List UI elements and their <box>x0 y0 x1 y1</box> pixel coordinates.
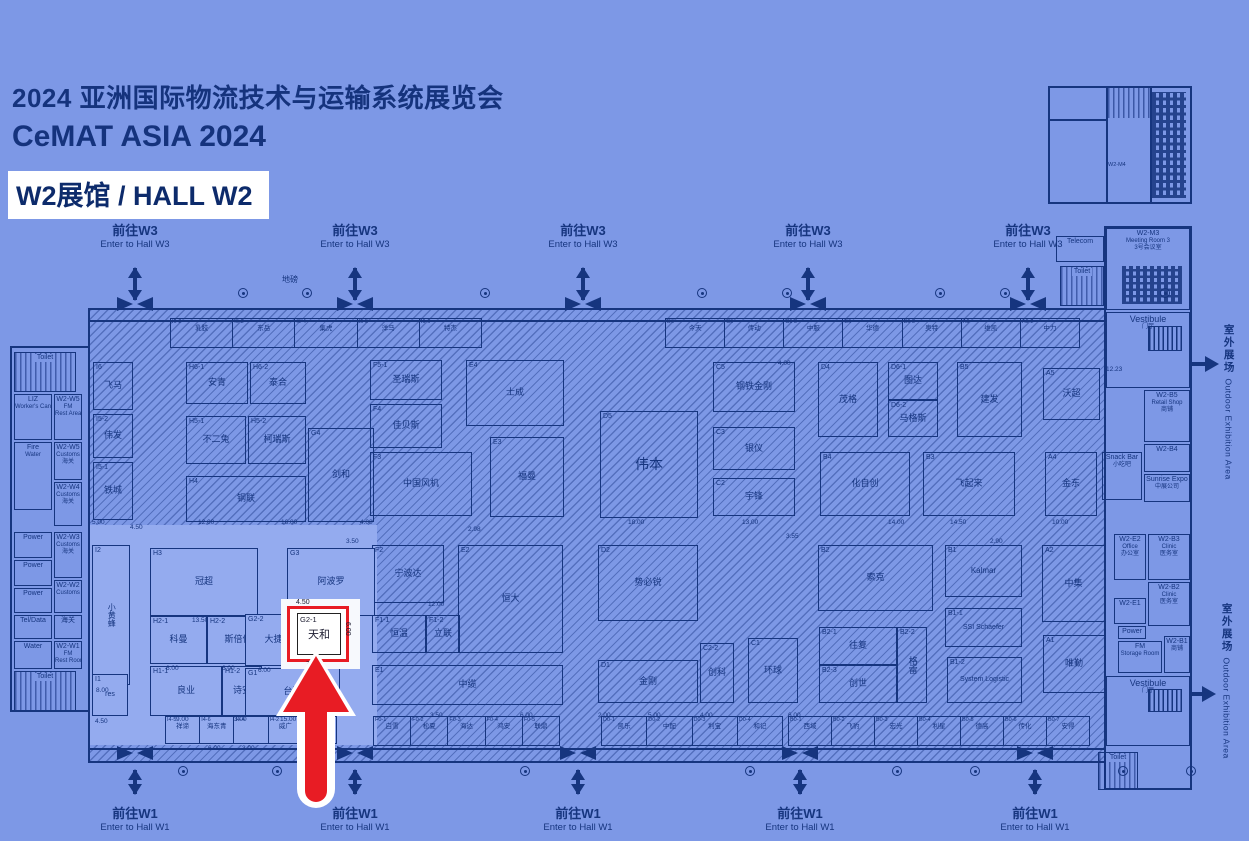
strip-booth-C6-2: C6-2中服 <box>784 319 843 347</box>
door-swing-icon <box>697 288 707 298</box>
booth-C5: C5钢铁金刚 <box>713 362 795 412</box>
room-LIZ: LIZWorker's Canteen <box>14 394 52 440</box>
door-swing-icon <box>745 766 755 776</box>
booth-strip: B0-1西域B0-2飞豹B0-3宏光B0-4利星B0-5德高B0-6传化B0-7… <box>788 716 1090 746</box>
booth-name: 剑和 <box>309 429 373 521</box>
booth-E1: E1中缆 <box>372 665 563 705</box>
room-W2-B4: W2-B4 <box>1144 444 1190 472</box>
booth-strip: F0-1白雪F0-2松夏F0-3海达F0-4鸿安F0-5联鼎 <box>373 716 560 746</box>
door-swing-icon <box>480 288 490 298</box>
strip-booth-D0-2: D0-2中配 <box>647 717 692 745</box>
strip-booth-F0-2: F0-2松夏 <box>411 717 448 745</box>
hall-link-w1: 前往W1Enter to Hall W1 <box>740 803 860 833</box>
annex-wall <box>1048 119 1106 121</box>
door-swing-icon <box>238 288 248 298</box>
strip-booth-A6-2: A6-2中力 <box>1021 319 1079 347</box>
highlight-dim-right: 6.00 <box>344 622 351 636</box>
outdoor-area-label: 室外展场 Outdoor Exhibition Area <box>1218 596 1236 766</box>
dimension-label: 3.50 <box>346 538 359 545</box>
booth-D6-2: D6-2马格斯 <box>888 400 938 437</box>
booth-name: 建发 <box>958 363 1021 436</box>
entrance-door-icon <box>782 746 818 761</box>
stairs-icon <box>1148 689 1182 712</box>
booth-F1-1: F1-1恒温 <box>372 615 426 653</box>
door-swing-icon <box>1160 288 1170 298</box>
dimension-label: 8.00 <box>96 687 109 694</box>
dimension-label: 4.50 <box>130 524 143 531</box>
room-W2-W3: W2-W3Customs海关 <box>54 532 82 578</box>
hall-link-arrow-icon <box>569 762 587 802</box>
booth-name: 金刚 <box>599 661 697 702</box>
hall-link-arrow-icon <box>346 762 364 802</box>
room-W2-E2: W2-E2Office办公室 <box>1114 534 1146 580</box>
booth-B2-1: B2-1往复 <box>819 627 897 665</box>
dimension-label: 6.00 <box>208 745 221 752</box>
dimension-label: 3.50 <box>430 712 443 719</box>
booth-name: 中国风机 <box>371 453 471 515</box>
dimension-label: 3.00 <box>234 716 247 723</box>
door-swing-icon <box>520 766 530 776</box>
room-Vestibule: Vestibule门厅 <box>1106 312 1190 388</box>
booth-I5-2: I5-2伟发 <box>93 414 133 458</box>
dimension-label: 6.00 <box>222 665 235 672</box>
booth-E2: E2恒大 <box>458 545 563 653</box>
booth-name: 创世 <box>820 666 896 702</box>
room-Vestibule: Vestibule门厅 <box>1106 676 1190 746</box>
booth-name: 钢联 <box>187 477 305 521</box>
booth-strip: I6-2乳胶I6-3东岳I6-4集虎I6-5洋马I6-6特杰 <box>170 318 482 348</box>
booth-name: 银仪 <box>714 428 794 469</box>
dimension-label: 2.90 <box>990 538 1003 545</box>
booth-I1: I1res <box>92 674 128 716</box>
room-海关: 海关 <box>54 615 82 639</box>
weighbridge-label: 地磅 <box>282 274 298 285</box>
strip-booth-F0-1: F0-1白雪 <box>374 717 411 745</box>
dimension-label: 4.00 <box>778 360 791 367</box>
booth-name: Kalmar <box>946 546 1021 596</box>
strip-booth-B0-1: B0-1西域 <box>789 717 832 745</box>
booth-I2: I2小黄蜂 <box>92 545 130 685</box>
room-W2-W5: W2-W5Customs海关 <box>54 442 82 480</box>
room-Snack Bar: Snack Bar小吃吧 <box>1102 452 1142 500</box>
hall-link-arrow-icon <box>126 260 144 308</box>
booth-name: 中集 <box>1043 546 1104 621</box>
booth-A2: A2中集 <box>1042 545 1105 622</box>
entrance-door-icon <box>560 746 596 761</box>
booth-H6-1: H6-1安青 <box>186 362 248 404</box>
booth-H3: H3冠超 <box>150 548 258 616</box>
booth-C3: C3银仪 <box>713 427 795 470</box>
booth-name: 势必锐 <box>599 546 697 620</box>
booth-I5-1: I5-1铁城 <box>93 462 133 520</box>
door-swing-icon <box>892 766 902 776</box>
booth-name: 福曼 <box>491 438 563 516</box>
strip-booth-B0-5: B0-5德高 <box>961 717 1004 745</box>
room-FM: FMStorage Room <box>1118 641 1162 673</box>
strip-booth-F0-4: F0-4鸿安 <box>486 717 523 745</box>
booth-name: 化自创 <box>821 453 909 515</box>
strip-booth-B6: B6华德 <box>843 319 902 347</box>
annex-seating-icon <box>1152 92 1186 198</box>
dimension-label: 4.00 <box>700 712 713 719</box>
booth-name: 环球 <box>749 639 797 702</box>
booth-A5: A5沃超 <box>1043 368 1100 420</box>
hall-link-arrow-icon <box>791 762 809 802</box>
booth-name: 冠超 <box>151 549 257 615</box>
strip-booth-D0-3: D0-3利宝 <box>693 717 738 745</box>
strip-booth-A6: A6维凯 <box>962 319 1021 347</box>
booth-D1: D1金刚 <box>598 660 698 703</box>
booth-B3: B3飞起来 <box>923 452 1015 516</box>
booth-name: 往复 <box>820 628 896 664</box>
hall-link-arrow-icon <box>799 260 817 308</box>
booth-F5-1: F5-1圣瑞斯 <box>370 360 442 400</box>
booth-B5: B5建发 <box>957 362 1022 437</box>
booth-E4: E4士成 <box>466 360 564 426</box>
booth-B1: B1Kalmar <box>945 545 1022 597</box>
room-W2-W5: W2-W5FMRest Area <box>54 394 82 440</box>
strip-booth-B0-3: B0-3宏光 <box>875 717 918 745</box>
dimension-label: 3.00 <box>242 745 255 752</box>
door-swing-icon <box>970 766 980 776</box>
dimension-label: 18.00 <box>628 519 644 526</box>
booth-strip: D6今天C6传动C6-2中服B6华德B6-2奥特A6维凯A6-2中力 <box>665 318 1080 348</box>
booth-A4: A4金东 <box>1045 452 1097 516</box>
annex-toilet-fixtures-icon <box>1108 88 1150 118</box>
room-W2-B3: W2-B3Clinic医务室 <box>1148 534 1190 580</box>
dimension-label: 12.00 <box>198 519 214 526</box>
dimension-label: 6.00 <box>258 667 271 674</box>
room-Water: Water <box>14 641 52 669</box>
highlight-dim-top: 4.50 <box>296 599 310 606</box>
booth-C2-2: C2-2创科 <box>700 643 734 703</box>
booth-name: 立联 <box>427 616 459 652</box>
booth-name: SSI Schaefer <box>946 609 1021 646</box>
booth-name: 圣瑞斯 <box>371 361 441 399</box>
dimension-label: 13.50 <box>192 617 208 624</box>
dimension-label: 4.50 <box>95 718 108 725</box>
booth-B2: B2索克 <box>818 545 933 611</box>
dimension-label: 6.00 <box>166 665 179 672</box>
room-W2-W1: W2-W1FMRest Room <box>54 641 82 669</box>
room-Power: Power <box>1118 626 1146 639</box>
door-swing-icon <box>935 288 945 298</box>
door-swing-icon <box>272 766 282 776</box>
booth-name: 飞起来 <box>924 453 1014 515</box>
strip-booth-I4-6: I4-6海东青 <box>200 717 234 743</box>
pointer-arrow-icon <box>305 710 327 802</box>
entrance-door-icon <box>1017 746 1053 761</box>
hall-link-arrow-icon <box>1019 260 1037 308</box>
outdoor-arrow-icon <box>1189 686 1217 702</box>
booth-B1-2: B1-2System Logistic <box>947 657 1022 703</box>
booth-H4: H4钢联 <box>186 476 306 522</box>
booth-name: 恒温 <box>373 616 425 652</box>
booth-C2: C2宇锋 <box>713 478 795 516</box>
floor-plan: 2024 亚洲国际物流技术与运输系统展览会 CeMAT ASIA 2024 W2… <box>0 0 1249 841</box>
booth-name: 飞马 <box>94 363 132 409</box>
strip-booth-B0-4: B0-4利星 <box>918 717 961 745</box>
strip-booth-B6-2: B6-2奥特 <box>903 319 962 347</box>
hall-link-w3: 前往W3Enter to Hall W3 <box>748 220 868 250</box>
door-swing-icon <box>1118 766 1128 776</box>
dimension-label: 15.00 <box>280 716 296 723</box>
strip-booth-I6-6: I6-6特杰 <box>420 319 481 347</box>
outdoor-label-cn: 室外展场 <box>1221 603 1233 653</box>
booth-name: 伟发 <box>94 415 132 457</box>
booth-I6: I6飞马 <box>93 362 133 410</box>
highlighted-booth[interactable]: G2-1 天和 <box>297 613 341 655</box>
outdoor-arrow-icon <box>1192 356 1220 372</box>
strip-booth-I6-2: I6-2乳胶 <box>171 319 233 347</box>
booth-C1: C1环球 <box>748 638 798 703</box>
hall-link-w1: 前往W1Enter to Hall W1 <box>75 803 195 833</box>
booth-name: 泰合 <box>251 363 305 403</box>
booth-name: 金东 <box>1046 453 1096 515</box>
strip-booth-B0-2: B0-2飞豹 <box>832 717 875 745</box>
booth-name: 马格斯 <box>889 401 937 436</box>
dimension-label: 12.23 <box>1106 366 1122 373</box>
dimension-label: 9.00 <box>176 716 189 723</box>
booth-name: 宇锋 <box>714 479 794 515</box>
booth-name: 沃超 <box>1044 369 1099 419</box>
booth-name: System Logistic <box>948 658 1021 702</box>
room-W2-B5: W2-B5Retail Shop商铺 <box>1144 390 1190 442</box>
booth-H1-1: H1-1良业 <box>150 666 222 716</box>
dimension-label: 6.00 <box>788 712 801 719</box>
booth-G4: G4剑和 <box>308 428 374 522</box>
booth-name: 创科 <box>701 644 733 702</box>
booth-name: 宁波达 <box>373 546 443 602</box>
booth-name: 恒大 <box>459 546 562 652</box>
door-swing-icon <box>178 766 188 776</box>
dimension-label: 5.00 <box>648 712 661 719</box>
booth-name: 图达 <box>889 363 937 399</box>
booth-name: 格雷 <box>898 628 926 702</box>
booth-name: 士成 <box>467 361 563 425</box>
hall-link-arrow-icon <box>346 260 364 308</box>
room-W2-W4: W2-W4Customs海关 <box>54 482 82 526</box>
strip-booth-B0-7: B0-7安得 <box>1047 717 1089 745</box>
booth-strip: D0-1凯乐D0-2中配D0-3利宝D0-4和记 <box>601 716 783 746</box>
dimension-label: 14.00 <box>888 519 904 526</box>
booth-name: 安青 <box>187 363 247 403</box>
room-W2-W2: W2-W2Customs <box>54 580 82 613</box>
room-Power: Power <box>14 532 52 558</box>
strip-booth-F0-3: F0-3海达 <box>448 717 485 745</box>
entrance-door-icon <box>337 746 373 761</box>
strip-booth-C6: C6传动 <box>725 319 784 347</box>
booth-name: 铁城 <box>94 463 132 519</box>
booth-D2: D2势必锐 <box>598 545 698 621</box>
booth-name: 小黄蜂 <box>93 546 129 684</box>
room-Toilet: Toilet <box>14 352 76 392</box>
booth-name: 索克 <box>819 546 932 610</box>
booth-name: 中缆 <box>373 666 562 704</box>
booth-B4: B4化自创 <box>820 452 910 516</box>
entrance-door-icon <box>117 746 153 761</box>
room-W2-E1: W2-E1 <box>1114 598 1146 624</box>
strip-booth-I6-3: I6-3东岳 <box>233 319 295 347</box>
dimension-label: 2.98 <box>468 526 481 533</box>
page-title: 2024 亚洲国际物流技术与运输系统展览会 <box>12 78 504 115</box>
booth-name: 柯瑞斯 <box>249 417 305 463</box>
room-W2-B2: W2-B2Clinic医务室 <box>1148 582 1190 626</box>
strip-booth-D6: D6今天 <box>666 319 725 347</box>
booth-B2-2: B2-2格雷 <box>897 627 927 703</box>
hall-link-w1: 前往W1Enter to Hall W1 <box>975 803 1095 833</box>
door-swing-icon <box>1186 766 1196 776</box>
booth-name: 茂格 <box>819 363 877 436</box>
booth-F3: F3中国风机 <box>370 452 472 516</box>
room-Toilet: Toilet <box>14 671 76 711</box>
room-Power: Power <box>14 560 52 586</box>
room-W2-M3: W2-M3Meeting Room 33号会议室 <box>1106 228 1190 310</box>
strip-booth-F0-5: F0-5联鼎 <box>523 717 559 745</box>
strip-booth-D0-1: D0-1凯乐 <box>602 717 647 745</box>
booth-B1-1: B1-1SSI Schaefer <box>945 608 1022 647</box>
booth-B2-3: B2-3创世 <box>819 665 897 703</box>
outdoor-label-en: Outdoor Exhibition Area <box>1222 658 1232 759</box>
booth-F4: F4佳贝斯 <box>370 404 442 448</box>
hall-link-w3: 前往W3Enter to Hall W3 <box>968 220 1088 250</box>
outdoor-label-en: Outdoor Exhibition Area <box>1224 379 1234 480</box>
booth-name: 不二兔 <box>187 417 245 463</box>
hall-link-arrow-icon <box>126 762 144 802</box>
hall-link-w3: 前往W3Enter to Hall W3 <box>523 220 643 250</box>
strip-booth-I6-5: I6-5洋马 <box>358 319 420 347</box>
dimension-label: 13.00 <box>742 519 758 526</box>
room-Sunrise Expo: Sunrise Expo中展公司 <box>1144 474 1190 502</box>
dimension-label: 10.00 <box>1052 519 1068 526</box>
hall-link-w3: 前往W3Enter to Hall W3 <box>295 220 415 250</box>
hall-link-arrow-icon <box>1026 762 1044 802</box>
room-Tel/Data: Tel/Data <box>14 615 52 639</box>
hall-link-w1: 前往W1Enter to Hall W1 <box>518 803 638 833</box>
booth-A1: A1唯勤 <box>1043 635 1105 693</box>
booth-H5-2: H5-2柯瑞斯 <box>248 416 306 464</box>
door-swing-icon <box>302 288 312 298</box>
strip-booth-D0-4: D0-4和记 <box>738 717 782 745</box>
booth-E3: E3福曼 <box>490 437 564 517</box>
hall-link-arrow-icon <box>574 260 592 308</box>
dimension-label: 16.00 <box>281 519 297 526</box>
outdoor-area-label: 室外展场 Outdoor Exhibition Area <box>1220 322 1238 482</box>
dimension-label: 14.50 <box>950 519 966 526</box>
strip-booth-I6-4: I6-4集虎 <box>295 319 357 347</box>
room-Toilet: Toilet <box>1060 266 1104 306</box>
dimension-label: 12.00 <box>428 601 444 608</box>
booth-name: 唯勤 <box>1044 636 1104 692</box>
booth-F1-2: F1-2立联 <box>426 615 460 653</box>
dimension-label: 5.00 <box>92 519 105 526</box>
room-Fire: FireWater <box>14 442 52 510</box>
dimension-label: 4.00 <box>360 519 373 526</box>
room-Power: Power <box>14 588 52 613</box>
booth-D6-1: D6-1图达 <box>888 362 938 400</box>
booth-name: 伟本 <box>601 412 697 517</box>
booth-F2: F2宁波达 <box>372 545 444 603</box>
door-swing-icon <box>1000 288 1010 298</box>
dimension-label: 6.00 <box>520 712 533 719</box>
hall-link-w3: 前往W3Enter to Hall W3 <box>75 220 195 250</box>
booth-D4: D4茂格 <box>818 362 878 437</box>
stairs-icon <box>1148 326 1182 351</box>
strip-booth-B0-6: B0-6传化 <box>1004 717 1047 745</box>
dimension-label: 2.00 <box>598 712 611 719</box>
expo-title: CeMAT ASIA 2024 <box>12 120 266 154</box>
booth-name: 良业 <box>151 667 221 715</box>
booth-name: 佳贝斯 <box>371 405 441 447</box>
booth-name: res <box>93 675 127 715</box>
highlighted-booth-name: 天和 <box>298 614 340 654</box>
dimension-label: 3.55 <box>786 533 799 540</box>
room-W2-B1: W2-B1商铺 <box>1164 636 1190 673</box>
booth-D5: D5伟本 <box>600 411 698 518</box>
inner-wall-bottom <box>88 748 1106 750</box>
booth-H5-1: H5-1不二兔 <box>186 416 246 464</box>
seat-rows-icon <box>1122 266 1183 304</box>
booth-H6-2: H6-2泰合 <box>250 362 306 404</box>
hall-badge: W2展馆 / HALL W2 <box>8 171 269 219</box>
booth-name: 钢铁金刚 <box>714 363 794 411</box>
annex-label: W2-M4 <box>1108 162 1126 168</box>
